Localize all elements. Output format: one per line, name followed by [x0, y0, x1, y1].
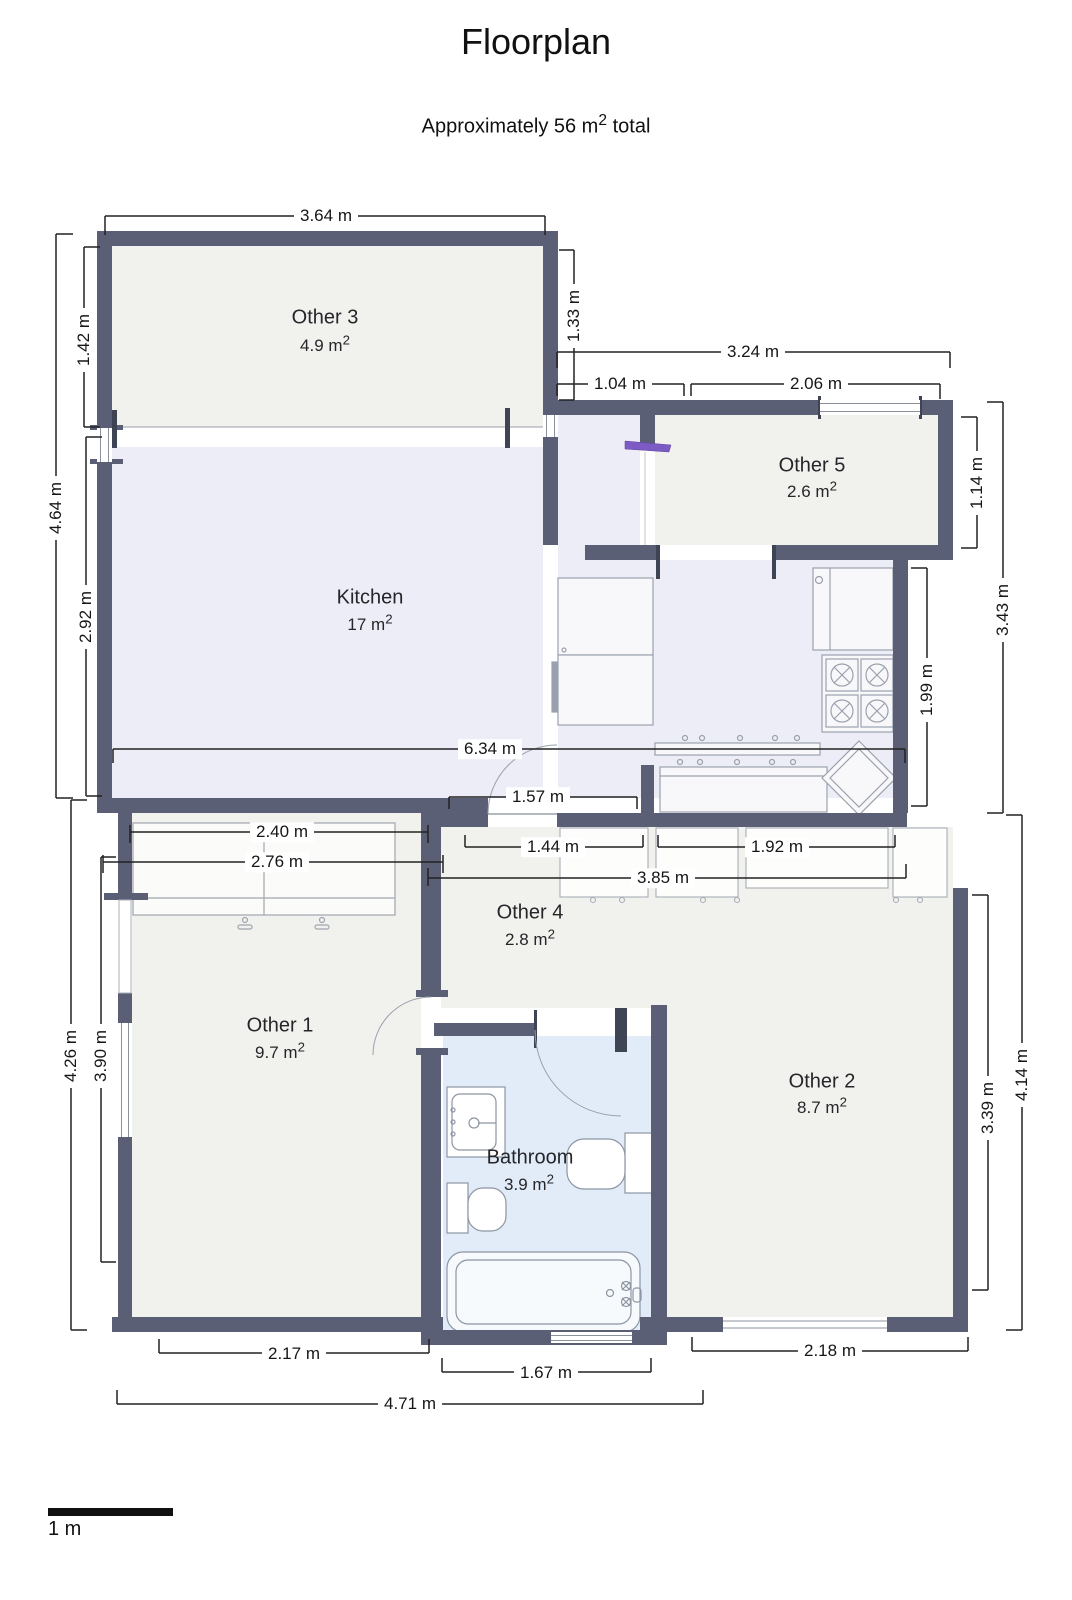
- room-area-other5: 2.6 m2: [787, 482, 837, 502]
- dim-other3-width: 3.64 m: [294, 206, 358, 226]
- window-other3-right: [543, 415, 558, 437]
- dim-1-04: 1.04 m: [588, 374, 652, 394]
- room-label-other2: Other 2: [789, 1071, 856, 1094]
- dim-kitchen-height: 2.92 m: [76, 585, 96, 649]
- dim-total-bottom: 4.71 m: [378, 1394, 442, 1414]
- dim-bathroom-bottom: 1.67 m: [514, 1363, 578, 1383]
- dim-left-lower-total: 4.26 m: [61, 1024, 81, 1088]
- room-area-other2: 8.7 m2: [797, 1098, 847, 1118]
- dim-other1-height: 3.90 m: [91, 1024, 111, 1088]
- window-kitchen-left: [97, 428, 112, 462]
- window-other1-left: [118, 1023, 132, 1137]
- window-bathroom-bottom: [551, 1332, 632, 1343]
- dim-other2-bottom: 2.18 m: [798, 1341, 862, 1361]
- room-area-kitchen: 17 m2: [347, 615, 392, 635]
- page-title: Floorplan: [461, 21, 611, 63]
- dim-2-06: 2.06 m: [784, 374, 848, 394]
- counter-run-icon: [655, 736, 827, 813]
- counter-icon: [813, 568, 893, 650]
- dim-wardrobe-width: 2.40 m: [250, 822, 314, 842]
- bidet-icon: [447, 1183, 506, 1233]
- dim-other5-height: 1.14 m: [967, 451, 987, 515]
- window-other2-bottom: [723, 1317, 887, 1332]
- room-label-kitchen: Kitchen: [337, 587, 404, 610]
- scale-bar-label: 1 m: [48, 1518, 81, 1541]
- room-label-other1: Other 1: [247, 1015, 314, 1038]
- room-label-bathroom: Bathroom: [487, 1147, 574, 1170]
- dim-right-upper-total: 3.43 m: [993, 578, 1013, 642]
- room-area-other4: 2.8 m2: [505, 930, 555, 950]
- dim-other2-height: 3.39 m: [978, 1076, 998, 1140]
- bathroom-door-leaf: [615, 1008, 627, 1052]
- scale-bar: [48, 1508, 173, 1516]
- other3-kitchen-opening: [112, 427, 543, 447]
- room-label-other4: Other 4: [497, 902, 564, 925]
- bathtub-icon: [447, 1252, 641, 1332]
- opening-other1-left: [119, 900, 131, 993]
- window-other5-top: [820, 400, 920, 415]
- dim-right-lower-total: 4.14 m: [1012, 1043, 1032, 1107]
- dim-1-44: 1.44 m: [521, 837, 585, 857]
- dim-1-92: 1.92 m: [745, 837, 809, 857]
- room-label-other3: Other 3: [292, 307, 359, 330]
- room-area-other1: 9.7 m2: [255, 1043, 305, 1063]
- fridge-icon: [552, 578, 653, 725]
- other5-floor: [655, 415, 938, 545]
- dim-upper-right: 3.24 m: [721, 342, 785, 362]
- floorplan-page: Floorplan Approximately 56 m2 total Othe…: [0, 0, 1072, 1600]
- room-area-bathroom: 3.9 m2: [504, 1175, 554, 1195]
- room-area-other3: 4.9 m2: [300, 336, 350, 356]
- dim-kitchen-right: 1.99 m: [917, 658, 937, 722]
- other2-floor: [667, 1008, 953, 1317]
- dim-other1-top: 2.76 m: [245, 852, 309, 872]
- dim-other3-right: 1.33 m: [564, 284, 584, 348]
- dim-left-total: 4.64 m: [46, 476, 66, 540]
- dim-other1-bottom: 2.17 m: [262, 1344, 326, 1364]
- room-label-other5: Other 5: [779, 455, 846, 478]
- stove-icon: [822, 655, 893, 732]
- dim-kitchen-width: 6.34 m: [458, 739, 522, 759]
- dim-corridor-width: 3.85 m: [631, 868, 695, 888]
- page-subtitle: Approximately 56 m2 total: [422, 116, 651, 139]
- dim-1-57: 1.57 m: [506, 787, 570, 807]
- kitchen-vestibule-floor: [558, 415, 640, 560]
- dim-other3-height: 1.42 m: [74, 308, 94, 372]
- toilet-icon: [567, 1133, 652, 1193]
